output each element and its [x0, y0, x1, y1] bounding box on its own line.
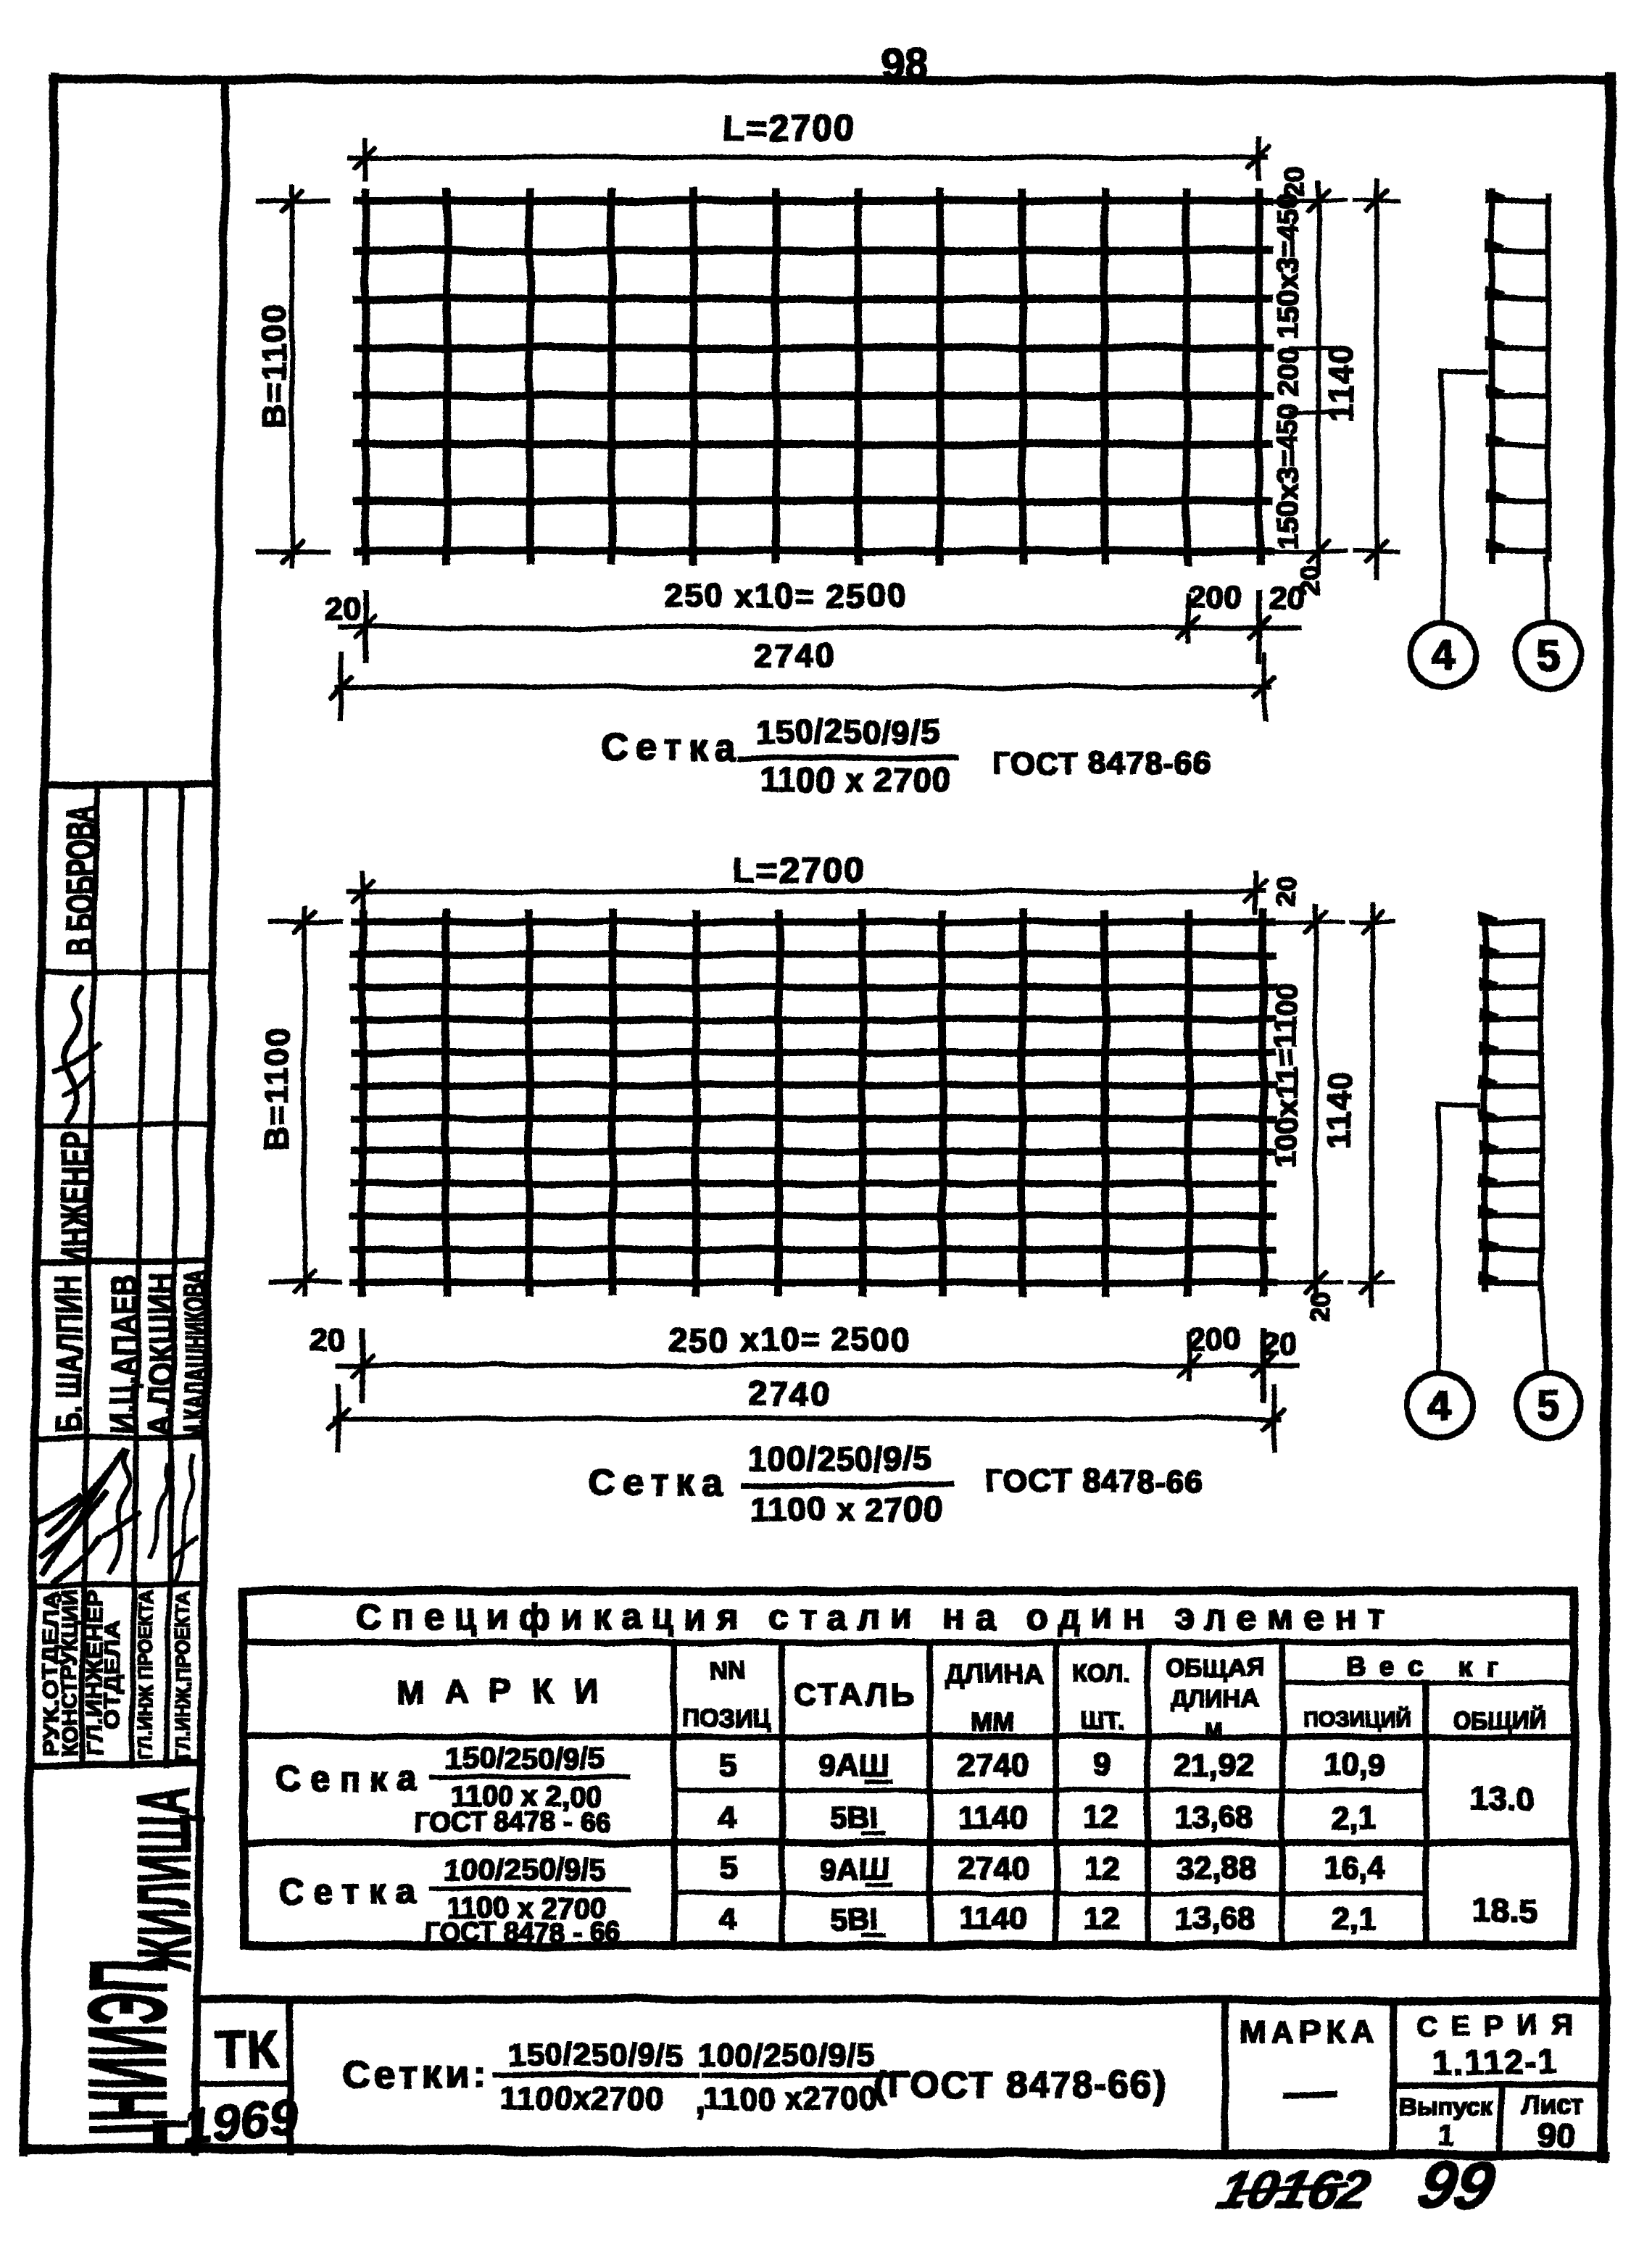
- svg-text:12: 12: [1084, 1850, 1120, 1886]
- svg-text:5ВI: 5ВI: [830, 1800, 877, 1835]
- svg-text:1100х2700: 1100х2700: [500, 2081, 665, 2117]
- svg-text:5: 5: [1537, 632, 1560, 679]
- svg-text:Сепка: Сепка: [276, 1760, 426, 1798]
- svg-text:150/250/9/5: 150/250/9/5: [444, 1741, 605, 1775]
- svg-text:ГЛ.ИНЖ.ПРОЕКТА: ГЛ.ИНЖ.ПРОЕКТА: [172, 1591, 194, 1761]
- svg-text:М.КАЛАШНИКОВА: М.КАЛАШНИКОВА: [178, 1271, 212, 1441]
- svg-text:200: 200: [1188, 579, 1241, 615]
- svg-text:10162: 10162: [1212, 2159, 1377, 2219]
- svg-text:13,68: 13,68: [1174, 1800, 1253, 1835]
- svg-text:1140: 1140: [958, 1901, 1027, 1937]
- svg-text:ГЛ.ИНЖ ПРОЕКТА: ГЛ.ИНЖ ПРОЕКТА: [134, 1590, 157, 1760]
- svg-text:20: 20: [325, 592, 360, 628]
- svg-text:ГОСТ 8478 - 66: ГОСТ 8478 - 66: [423, 1917, 620, 1948]
- svg-text:(ГОСТ 8478-66): (ГОСТ 8478-66): [873, 2064, 1167, 2106]
- svg-text:200: 200: [1272, 347, 1304, 396]
- svg-text:1140: 1140: [1321, 1071, 1358, 1149]
- svg-text:150/250/9/5: 150/250/9/5: [756, 713, 940, 751]
- svg-text:20: 20: [310, 1322, 346, 1358]
- svg-text:ГОСТ 8478-66: ГОСТ 8478-66: [985, 1463, 1204, 1499]
- svg-text:1100 х 2700: 1100 х 2700: [760, 761, 951, 799]
- svg-text:2740: 2740: [754, 636, 837, 674]
- svg-text:КОНСТРУКЦИЙ: КОНСТРУКЦИЙ: [57, 1590, 82, 1756]
- svg-text:2740: 2740: [958, 1850, 1029, 1886]
- svg-text:Сетки:: Сетки:: [343, 2053, 490, 2096]
- svg-text:Сетка: Сетка: [280, 1873, 425, 1911]
- svg-text:ОТДЕЛА: ОТДЕЛА: [100, 1620, 124, 1729]
- svg-text:200: 200: [1187, 1322, 1240, 1358]
- svg-text:20: 20: [1295, 565, 1326, 596]
- svg-text:А.ЛОКШИН: А.ЛОКШИН: [142, 1273, 180, 1436]
- svg-text:В е с к г: В е с к г: [1346, 1652, 1500, 1682]
- svg-text:ММ: ММ: [971, 1707, 1015, 1737]
- svg-text:20: 20: [1306, 1292, 1336, 1322]
- svg-text:ДЛИНА: ДЛИНА: [1171, 1685, 1259, 1712]
- svg-text:12: 12: [1084, 1800, 1120, 1835]
- svg-text:B=1100: B=1100: [258, 1026, 296, 1151]
- svg-text:МАРКА: МАРКА: [1240, 2014, 1378, 2050]
- svg-text:1969: 1969: [180, 2088, 302, 2157]
- svg-text:NN: NN: [710, 1657, 745, 1685]
- svg-text:4: 4: [1432, 631, 1455, 678]
- svg-text:ОБЩАЯ: ОБЩАЯ: [1166, 1654, 1264, 1682]
- svg-text:ИНЖЕНЕР: ИНЖЕНЕР: [54, 1132, 97, 1266]
- svg-text:Б. ШАЛПИН: Б. ШАЛПИН: [49, 1275, 89, 1433]
- svg-text:С Е Р И Я: С Е Р И Я: [1416, 2010, 1576, 2042]
- svg-text:1140: 1140: [1322, 344, 1360, 422]
- svg-text:Сетка: Сетка: [602, 726, 744, 768]
- svg-text:ЦНИИЭП: ЦНИИЭП: [67, 1960, 190, 2154]
- svg-text:L=2700: L=2700: [723, 108, 855, 149]
- svg-text:ПОЗИЦИЙ: ПОЗИЦИЙ: [1303, 1707, 1411, 1732]
- svg-text:2740: 2740: [958, 1748, 1029, 1783]
- svg-text:5ВI: 5ВI: [830, 1902, 877, 1936]
- svg-text:5: 5: [719, 1748, 736, 1783]
- svg-text:150x3=450: 150x3=450: [1272, 192, 1304, 338]
- svg-text:ШТ.: ШТ.: [1080, 1708, 1124, 1735]
- svg-text:L=2700: L=2700: [734, 850, 866, 891]
- svg-text:90: 90: [1537, 2117, 1574, 2154]
- svg-text:5: 5: [719, 1850, 736, 1886]
- svg-text:М А Р К И: М А Р К И: [397, 1673, 604, 1711]
- svg-text:100/250/9/5: 100/250/9/5: [444, 1853, 605, 1887]
- svg-text:18.5: 18.5: [1472, 1892, 1537, 1930]
- svg-text:20: 20: [1271, 876, 1302, 907]
- svg-text:5: 5: [1537, 1382, 1560, 1429]
- svg-text:ЖИЛИЩА: ЖИЛИЩА: [123, 1787, 207, 1972]
- svg-text:16,4: 16,4: [1323, 1850, 1385, 1886]
- svg-text:4: 4: [719, 1800, 737, 1835]
- svg-text:1100 х 2700: 1100 х 2700: [751, 1490, 942, 1528]
- svg-text:ТК: ТК: [215, 2021, 279, 2079]
- svg-text:ГОСТ 8478 - 66: ГОСТ 8478 - 66: [414, 1807, 610, 1837]
- svg-text:КОЛ.: КОЛ.: [1073, 1660, 1131, 1687]
- svg-text:9: 9: [1093, 1748, 1111, 1783]
- svg-text:250 x10= 2500: 250 x10= 2500: [669, 1321, 911, 1358]
- svg-text:10,9: 10,9: [1323, 1748, 1385, 1783]
- svg-text:1.112-1: 1.112-1: [1432, 2044, 1558, 2082]
- svg-text:СТАЛЬ: СТАЛЬ: [794, 1677, 917, 1712]
- svg-text:Сетка: Сетка: [588, 1461, 730, 1503]
- svg-text:100/250/9/5: 100/250/9/5: [748, 1440, 932, 1477]
- svg-text:ОБЩИЙ: ОБЩИЙ: [1454, 1707, 1546, 1733]
- svg-text:В БОБРОВА: В БОБРОВА: [59, 805, 102, 956]
- svg-text:21,92: 21,92: [1174, 1748, 1253, 1783]
- svg-text:2,1: 2,1: [1332, 1800, 1376, 1835]
- svg-text:2,1: 2,1: [1332, 1901, 1376, 1937]
- svg-text:13,68: 13,68: [1175, 1901, 1255, 1937]
- svg-text:20: 20: [1281, 166, 1311, 196]
- svg-text:32,88: 32,88: [1176, 1850, 1256, 1886]
- svg-text:М: М: [1206, 1718, 1224, 1742]
- svg-text:И.Ц.АПАЕВ: И.Ц.АПАЕВ: [104, 1274, 144, 1434]
- svg-text:9АШ: 9АШ: [821, 1851, 890, 1885]
- svg-text:Выпуск: Выпуск: [1399, 2093, 1493, 2121]
- svg-text:20: 20: [1261, 1326, 1297, 1362]
- svg-text:1140: 1140: [958, 1800, 1027, 1835]
- svg-text:4: 4: [719, 1901, 737, 1937]
- svg-text:B=1100: B=1100: [255, 303, 293, 428]
- svg-text:13.0: 13.0: [1469, 1780, 1535, 1818]
- svg-text:100x11=1100: 100x11=1100: [1269, 983, 1303, 1166]
- svg-text:250 x10= 2500: 250 x10= 2500: [664, 577, 906, 615]
- svg-text:100/250/9/5: 100/250/9/5: [698, 2038, 874, 2073]
- svg-text:150/250/9/5: 150/250/9/5: [507, 2038, 684, 2073]
- svg-text:4: 4: [1427, 1382, 1450, 1429]
- svg-text:ГОСТ 8478-66: ГОСТ 8478-66: [992, 746, 1211, 781]
- svg-text:ПОЗИЦ: ПОЗИЦ: [682, 1705, 771, 1732]
- svg-text:2740: 2740: [749, 1375, 831, 1413]
- svg-text:Лист: Лист: [1522, 2090, 1583, 2119]
- svg-text:12: 12: [1084, 1901, 1120, 1937]
- svg-text:1100 х2700: 1100 х2700: [704, 2081, 878, 2117]
- svg-text:150x3=450: 150x3=450: [1272, 402, 1304, 548]
- svg-text:ДЛИНА: ДЛИНА: [945, 1659, 1044, 1690]
- svg-text:9АШ: 9АШ: [819, 1748, 889, 1782]
